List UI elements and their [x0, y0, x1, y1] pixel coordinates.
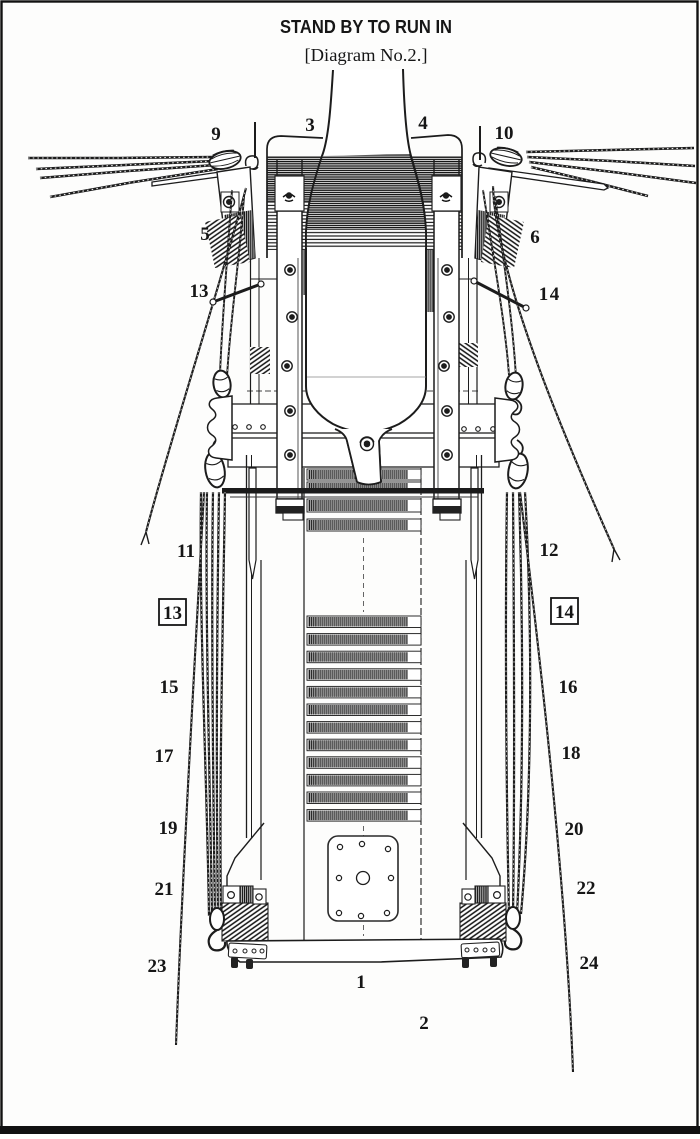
svg-text:13: 13 [190, 281, 209, 302]
svg-text:14: 14 [555, 602, 575, 623]
svg-text:17: 17 [155, 746, 175, 767]
svg-text:13: 13 [163, 603, 182, 624]
svg-text:6: 6 [530, 227, 540, 248]
svg-text:3: 3 [305, 115, 315, 136]
svg-text:16: 16 [559, 677, 578, 698]
svg-text:12: 12 [540, 540, 559, 561]
svg-text:4: 4 [418, 113, 428, 134]
svg-text:23: 23 [148, 956, 167, 977]
svg-text:9: 9 [211, 124, 221, 145]
svg-text:5: 5 [200, 224, 210, 245]
svg-text:10: 10 [495, 123, 514, 144]
svg-text:11: 11 [177, 541, 195, 562]
svg-text:1 4: 1 4 [539, 284, 560, 305]
svg-text:1: 1 [356, 972, 366, 993]
svg-text:21: 21 [155, 879, 174, 900]
svg-text:22: 22 [577, 878, 596, 899]
svg-text:20: 20 [565, 819, 584, 840]
svg-text:18: 18 [562, 743, 581, 764]
svg-text:24: 24 [580, 953, 600, 974]
svg-text:19: 19 [159, 818, 178, 839]
svg-text:15: 15 [160, 677, 179, 698]
svg-text:2: 2 [419, 1013, 429, 1034]
svg-text:[Diagram No.2.]: [Diagram No.2.] [305, 45, 428, 65]
svg-text:STAND BY TO RUN IN: STAND BY TO RUN IN [280, 17, 452, 37]
